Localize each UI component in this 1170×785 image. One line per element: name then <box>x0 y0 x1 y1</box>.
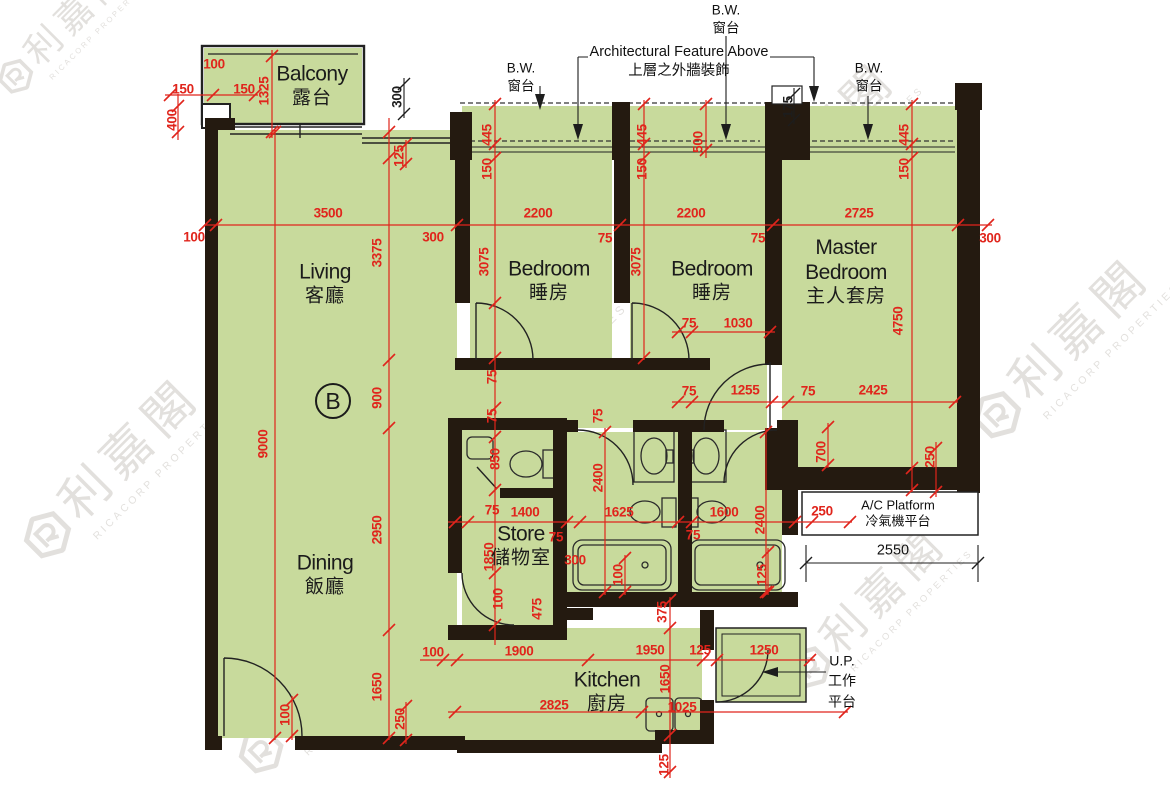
dimension-label: 445 <box>480 124 495 146</box>
dimension-label: 175 <box>781 96 796 118</box>
dimension-label: 150 <box>233 82 255 97</box>
dimension-label: 100 <box>203 57 225 72</box>
callout-line: 2550 <box>877 542 909 561</box>
dimension-label: 125 <box>755 564 770 586</box>
callout-line: B.W. <box>712 1 741 19</box>
dimension-label: 100 <box>183 230 205 245</box>
dimension-label: 125 <box>689 643 711 658</box>
callout-line: 冷氣機平台 <box>861 513 935 529</box>
dimension-label: 300 <box>564 553 586 568</box>
callout-line: Architectural Feature Above <box>590 43 769 62</box>
dimension-label: 3500 <box>314 206 343 221</box>
callout-utility-platform: U.P.工作平台 <box>828 651 856 712</box>
callout-line: 平台 <box>828 691 856 711</box>
dimension-label: 1250 <box>750 643 779 658</box>
dimension-label: 700 <box>814 441 829 463</box>
dimension-label: 445 <box>635 124 650 146</box>
callout-line: B.W. <box>855 59 884 77</box>
dimension-label: 75 <box>686 528 700 543</box>
callout-line: U.P. <box>828 651 856 671</box>
dimension-label: 2400 <box>591 464 606 493</box>
callout-bw-left: B.W.窗台 <box>507 59 536 94</box>
room-name-en: Living <box>299 260 351 285</box>
room-label-dining: Dining飯廳 <box>297 551 354 598</box>
dimension-label: 100 <box>611 564 626 586</box>
room-name-zh: 主人套房 <box>787 286 905 308</box>
room-label-bedroom-2: Bedroom睡房 <box>671 257 753 304</box>
dimension-label: 125 <box>392 145 407 167</box>
dimension-label: 3075 <box>629 248 644 277</box>
dimension-label: 1255 <box>731 383 760 398</box>
room-name-zh: 廚房 <box>574 693 641 715</box>
room-name-en: Kitchen <box>574 668 641 693</box>
room-name-en: Bedroom <box>671 257 753 282</box>
dimension-label: 2825 <box>540 698 569 713</box>
callout-line: B.W. <box>507 59 536 77</box>
dimension-label: 75 <box>682 384 696 399</box>
dimension-label: 100 <box>422 645 444 660</box>
dimension-label: 75 <box>751 231 765 246</box>
dimension-label: 100 <box>278 704 293 726</box>
callout-bw-middle: B.W.窗台 <box>712 1 741 36</box>
dimension-label: 3375 <box>370 239 385 268</box>
dimension-label: 1900 <box>505 644 534 659</box>
dimension-label: 300 <box>979 231 1001 246</box>
room-label-kitchen: Kitchen廚房 <box>574 668 641 715</box>
unit-letter-badge: B <box>315 383 351 419</box>
room-label-balcony: Balcony露台 <box>276 62 347 109</box>
dimension-label: 900 <box>370 387 385 409</box>
callout-line: 工作 <box>828 671 856 691</box>
callout-line: 窗台 <box>712 19 741 37</box>
dimension-label: 500 <box>691 131 706 153</box>
room-label-store: Store儲物室 <box>491 522 551 569</box>
callout-ac-platform-width: 2550 <box>877 542 909 561</box>
callout-ac-platform: A/C Platform冷氣機平台 <box>861 497 935 528</box>
dimension-label: 1400 <box>511 505 540 520</box>
room-name-zh: 儲物室 <box>491 547 551 569</box>
dimension-label: 75 <box>682 316 696 331</box>
callout-line: 上層之外牆裝飾 <box>590 62 769 81</box>
dimension-label: 150 <box>897 158 912 180</box>
dimension-label: 2400 <box>753 506 768 535</box>
dimension-label: 445 <box>897 124 912 146</box>
dimension-label: 1650 <box>370 673 385 702</box>
callout-bw-right: B.W.窗台 <box>855 59 884 94</box>
dimension-label: 250 <box>811 504 833 519</box>
dimension-label: 150 <box>635 158 650 180</box>
floor-plan: 利嘉閣 RICACORP PROPERTIES 利嘉閣 RICACORP PRO… <box>0 0 1170 785</box>
labels-layer: B 10015015040013253001254451504451505001… <box>0 0 1170 785</box>
callout-line: 窗台 <box>855 77 884 95</box>
room-name-zh: 客廳 <box>299 285 351 307</box>
room-label-living: Living客廳 <box>299 260 351 307</box>
dimension-label: 400 <box>165 109 180 131</box>
room-name-zh: 飯廳 <box>297 576 354 598</box>
room-name-zh: 露台 <box>276 87 347 109</box>
room-name-en: Balcony <box>276 62 347 87</box>
dimension-label: 2950 <box>370 516 385 545</box>
unit-letter: B <box>325 388 340 415</box>
dimension-label: 2200 <box>677 206 706 221</box>
dimension-label: 300 <box>390 86 405 108</box>
dimension-label: 9000 <box>256 430 271 459</box>
dimension-label: 850 <box>488 448 503 470</box>
room-name-en: Bedroom <box>508 257 590 282</box>
dimension-label: 1325 <box>257 77 272 106</box>
dimension-label: 75 <box>598 231 612 246</box>
dimension-label: 2425 <box>859 383 888 398</box>
dimension-label: 1025 <box>668 700 697 715</box>
dimension-label: 2200 <box>524 206 553 221</box>
room-name-zh: 睡房 <box>671 282 753 304</box>
dimension-label: 75 <box>591 409 606 423</box>
dimension-label: 475 <box>530 598 545 620</box>
dimension-label: 125 <box>657 754 672 776</box>
room-name-en: Master Bedroom <box>787 236 905 286</box>
dimension-label: 250 <box>923 446 938 468</box>
dimension-label: 100 <box>491 588 506 610</box>
dimension-label: 75 <box>485 409 500 423</box>
dimension-label: 375 <box>655 601 670 623</box>
dimension-label: 3075 <box>477 248 492 277</box>
dimension-label: 75 <box>485 370 500 384</box>
room-name-en: Dining <box>297 551 354 576</box>
callout-line: A/C Platform <box>861 497 935 513</box>
dimension-label: 1030 <box>724 316 753 331</box>
dimension-label: 250 <box>393 708 408 730</box>
dimension-label: 1625 <box>605 505 634 520</box>
dimension-label: 1950 <box>636 643 665 658</box>
room-label-bedroom-1: Bedroom睡房 <box>508 257 590 304</box>
dimension-label: 1650 <box>658 665 673 694</box>
dimension-label: 4750 <box>891 307 906 336</box>
dimension-label: 2725 <box>845 206 874 221</box>
room-name-zh: 睡房 <box>508 282 590 304</box>
room-name-en: Store <box>491 522 551 547</box>
callout-line: 窗台 <box>507 77 536 95</box>
dimension-label: 75 <box>801 384 815 399</box>
room-label-master-bedroom: Master Bedroom主人套房 <box>787 236 905 308</box>
dimension-label: 150 <box>172 82 194 97</box>
callout-architectural-feature: Architectural Feature Above上層之外牆裝飾 <box>590 43 769 81</box>
dimension-label: 300 <box>422 230 444 245</box>
dimension-label: 150 <box>480 158 495 180</box>
dimension-label: 75 <box>485 503 499 518</box>
dimension-label: 1600 <box>710 505 739 520</box>
